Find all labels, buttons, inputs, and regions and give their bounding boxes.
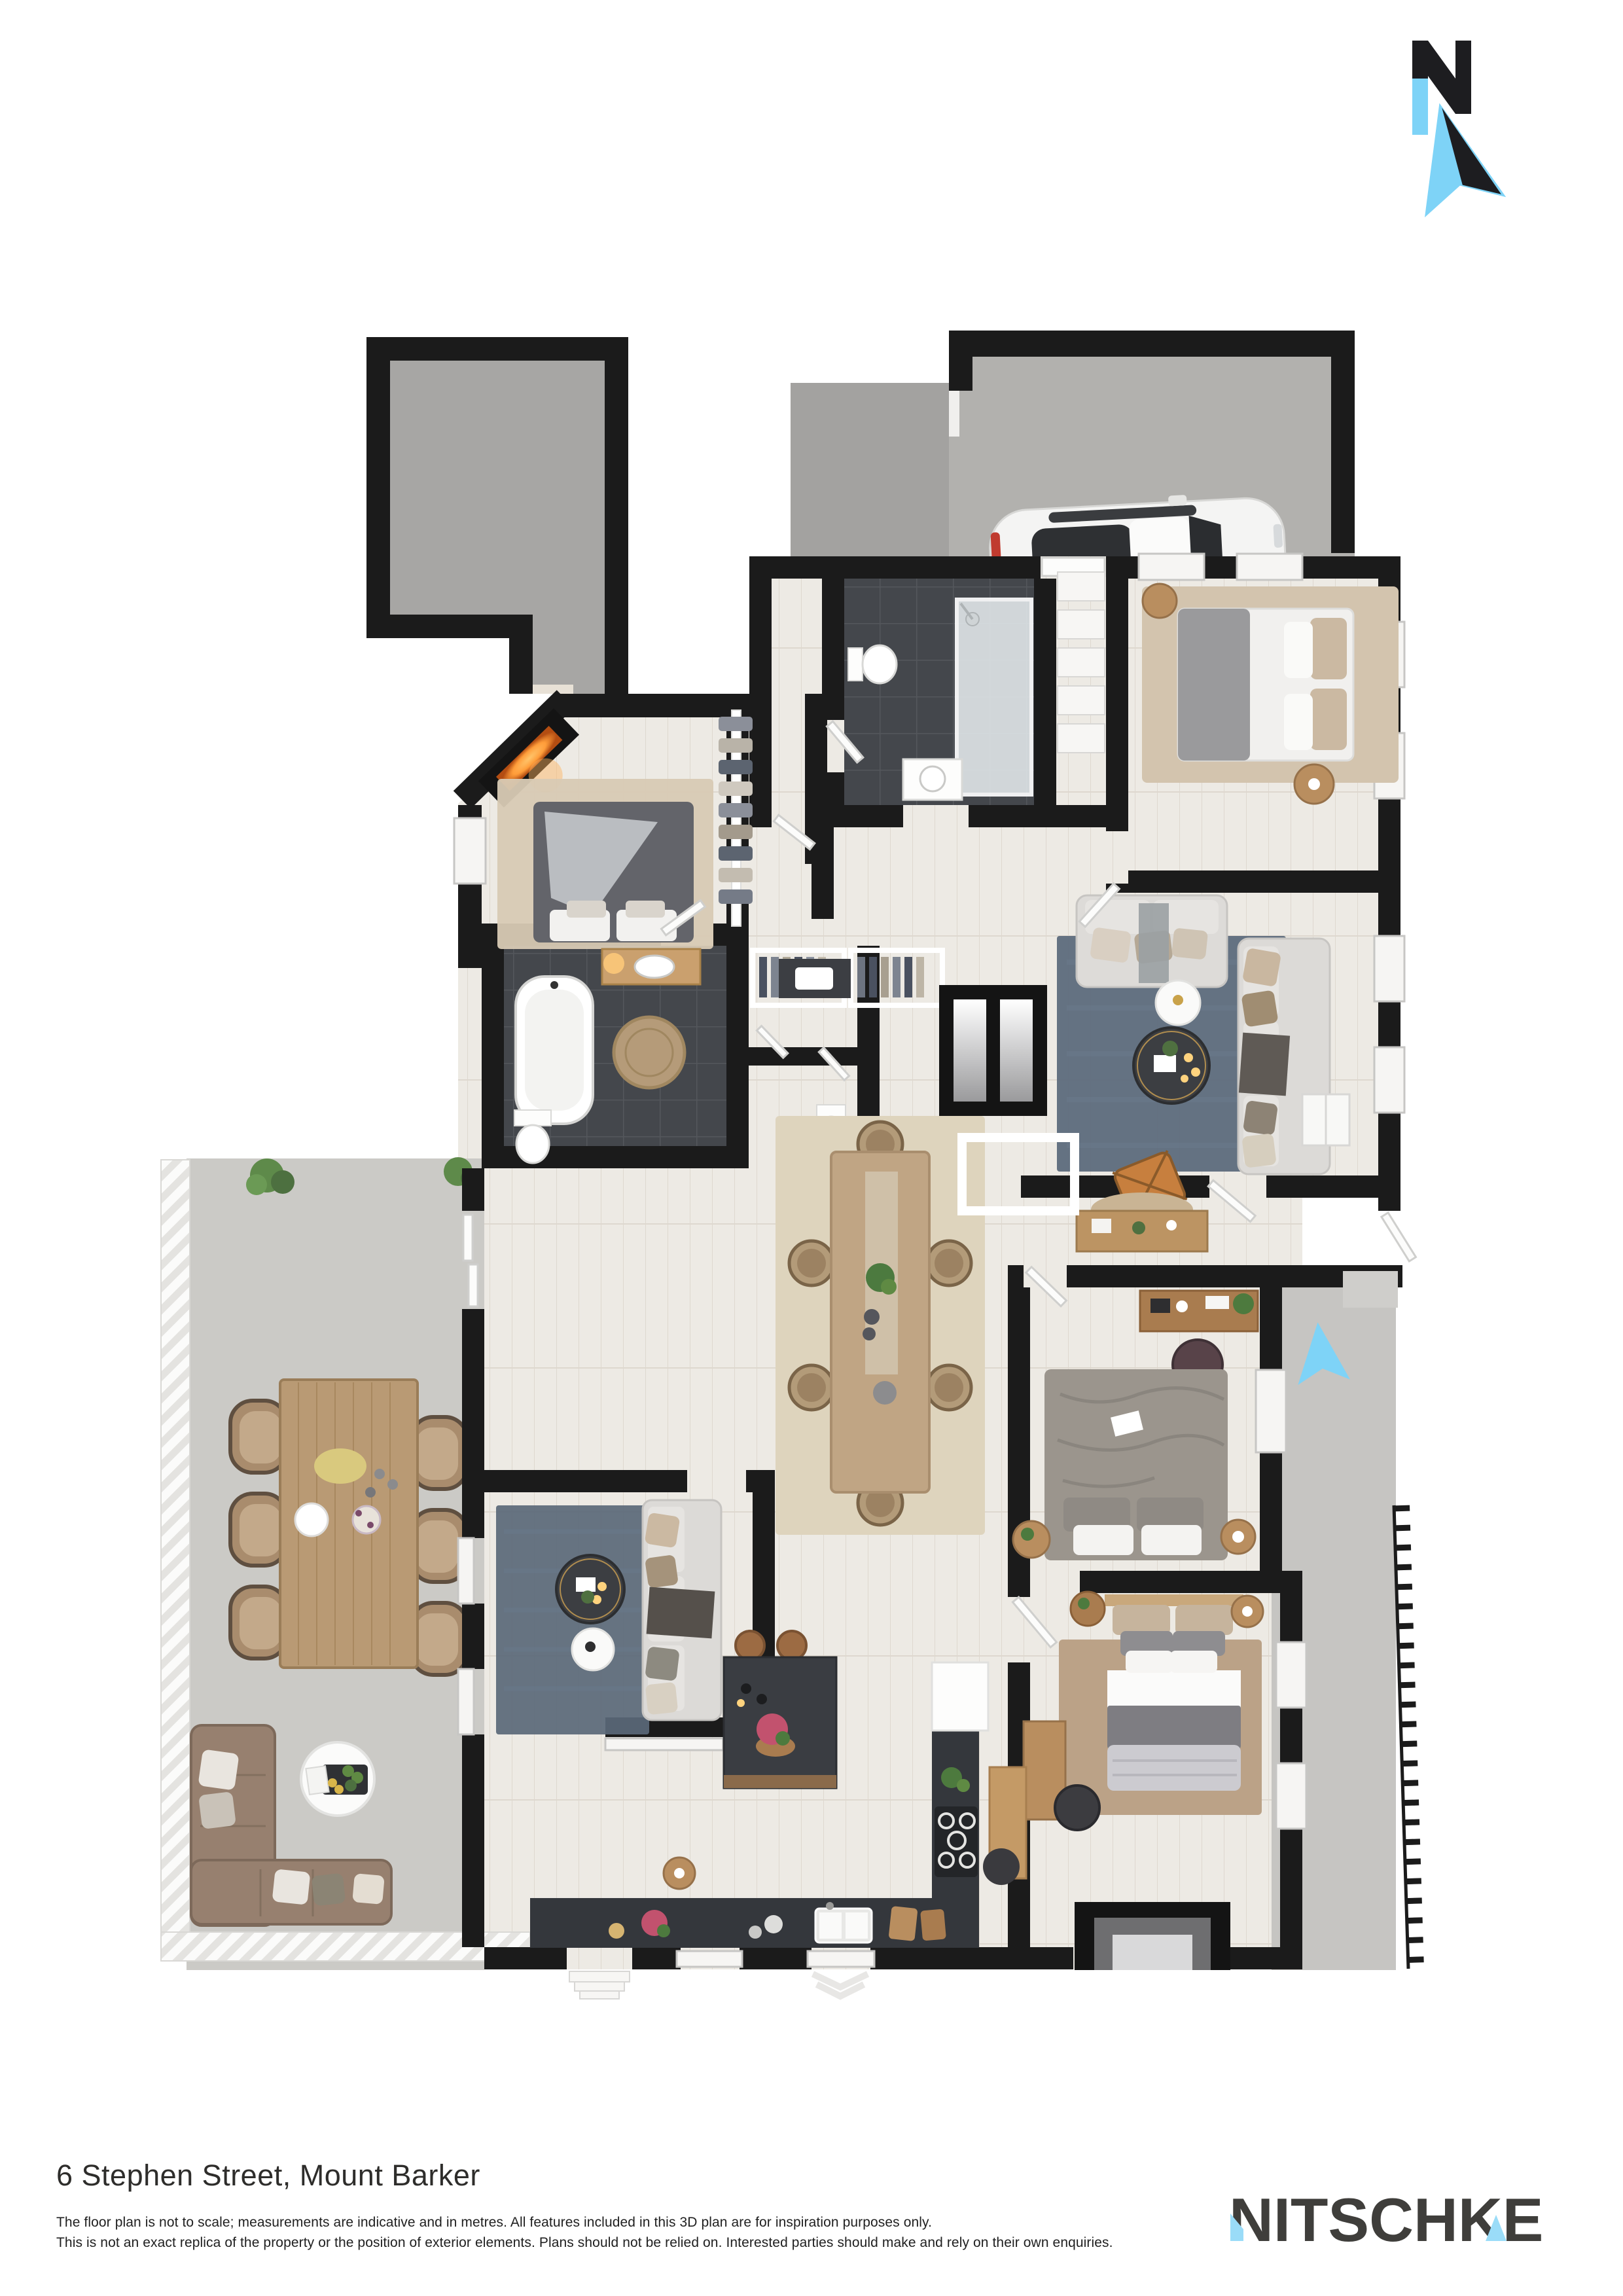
throw — [647, 1587, 715, 1639]
laundry-sink — [795, 967, 833, 990]
stool-chair — [983, 1848, 1020, 1885]
bar-stool — [736, 1631, 764, 1660]
headboard — [1105, 1594, 1243, 1606]
plate — [295, 1503, 328, 1536]
disclaimer-line-1: The floor plan is not to scale; measurem… — [56, 2212, 1113, 2233]
floor-plan-page: N 6 Stephen Street, Mount Barker The flo… — [0, 0, 1623, 2296]
entry-stairs — [1058, 572, 1105, 753]
faucet — [826, 1902, 834, 1910]
round-rug — [614, 1017, 685, 1088]
basin — [635, 956, 674, 978]
side-table — [1071, 1592, 1105, 1626]
north-letter: N — [1437, 107, 1438, 108]
floor-plan-graphic: N — [0, 0, 1623, 2296]
outdoor-chairs-left — [230, 1401, 287, 1659]
outdoor-dining — [230, 1380, 467, 1675]
placemat — [314, 1448, 366, 1484]
window — [808, 1951, 874, 1967]
rear-steps — [569, 1971, 868, 1999]
exterior-door — [1382, 1213, 1416, 1261]
bedroom-2 — [1142, 584, 1399, 804]
candle-glow — [609, 1923, 624, 1939]
car-taillight — [990, 532, 1001, 560]
window — [1256, 1370, 1286, 1452]
window — [458, 1669, 474, 1734]
boundary-fence — [1394, 1505, 1416, 1969]
plant — [1233, 1293, 1254, 1314]
sofa — [643, 1500, 721, 1720]
rug — [496, 1505, 649, 1734]
patio-slider — [463, 1215, 473, 1261]
bed — [1107, 1670, 1241, 1711]
north-arrow — [1399, 41, 1506, 217]
window — [1374, 936, 1404, 1001]
window — [454, 818, 486, 884]
fridge — [932, 1662, 988, 1731]
window — [1276, 1642, 1306, 1708]
disclaimer-line-2: This is not an exact replica of the prop… — [56, 2233, 1113, 2253]
side-table — [1143, 584, 1177, 618]
lamp-glow — [603, 953, 624, 974]
double-fireplace — [939, 985, 1047, 1116]
throw — [1239, 1033, 1290, 1096]
basin — [920, 766, 945, 791]
window — [677, 1951, 742, 1967]
carport-post — [949, 391, 959, 437]
address-title: 6 Stephen Street, Mount Barker — [56, 2159, 480, 2193]
bedroom4-fireplace — [1075, 1902, 1230, 1970]
shower — [957, 600, 1031, 795]
window — [605, 1738, 723, 1750]
window — [458, 1538, 474, 1604]
tap — [550, 981, 558, 989]
window — [1374, 1047, 1404, 1113]
blanket — [1107, 1706, 1241, 1749]
office-chair — [1055, 1785, 1099, 1830]
pillow — [198, 1749, 239, 1790]
hanging-clothes — [719, 717, 753, 904]
window — [1139, 554, 1204, 580]
pillow — [1113, 1605, 1170, 1635]
window — [1276, 1763, 1306, 1829]
door-landing — [1343, 1271, 1398, 1308]
nitschke-logo: NITSCHKE — [1225, 2181, 1578, 2254]
cake — [353, 1506, 380, 1534]
duvet — [1107, 1745, 1241, 1791]
garage-floor — [390, 361, 605, 615]
toilet — [514, 1110, 551, 1126]
blanket — [1178, 609, 1250, 761]
cooktop — [935, 1806, 978, 1877]
plant — [1162, 1041, 1178, 1056]
toilet — [848, 648, 863, 681]
window — [1237, 554, 1302, 580]
cutting-board — [888, 1906, 918, 1941]
patio-fence-left — [161, 1160, 190, 1943]
disclaimer: The floor plan is not to scale; measurem… — [56, 2212, 1113, 2253]
pillow — [1310, 618, 1347, 679]
